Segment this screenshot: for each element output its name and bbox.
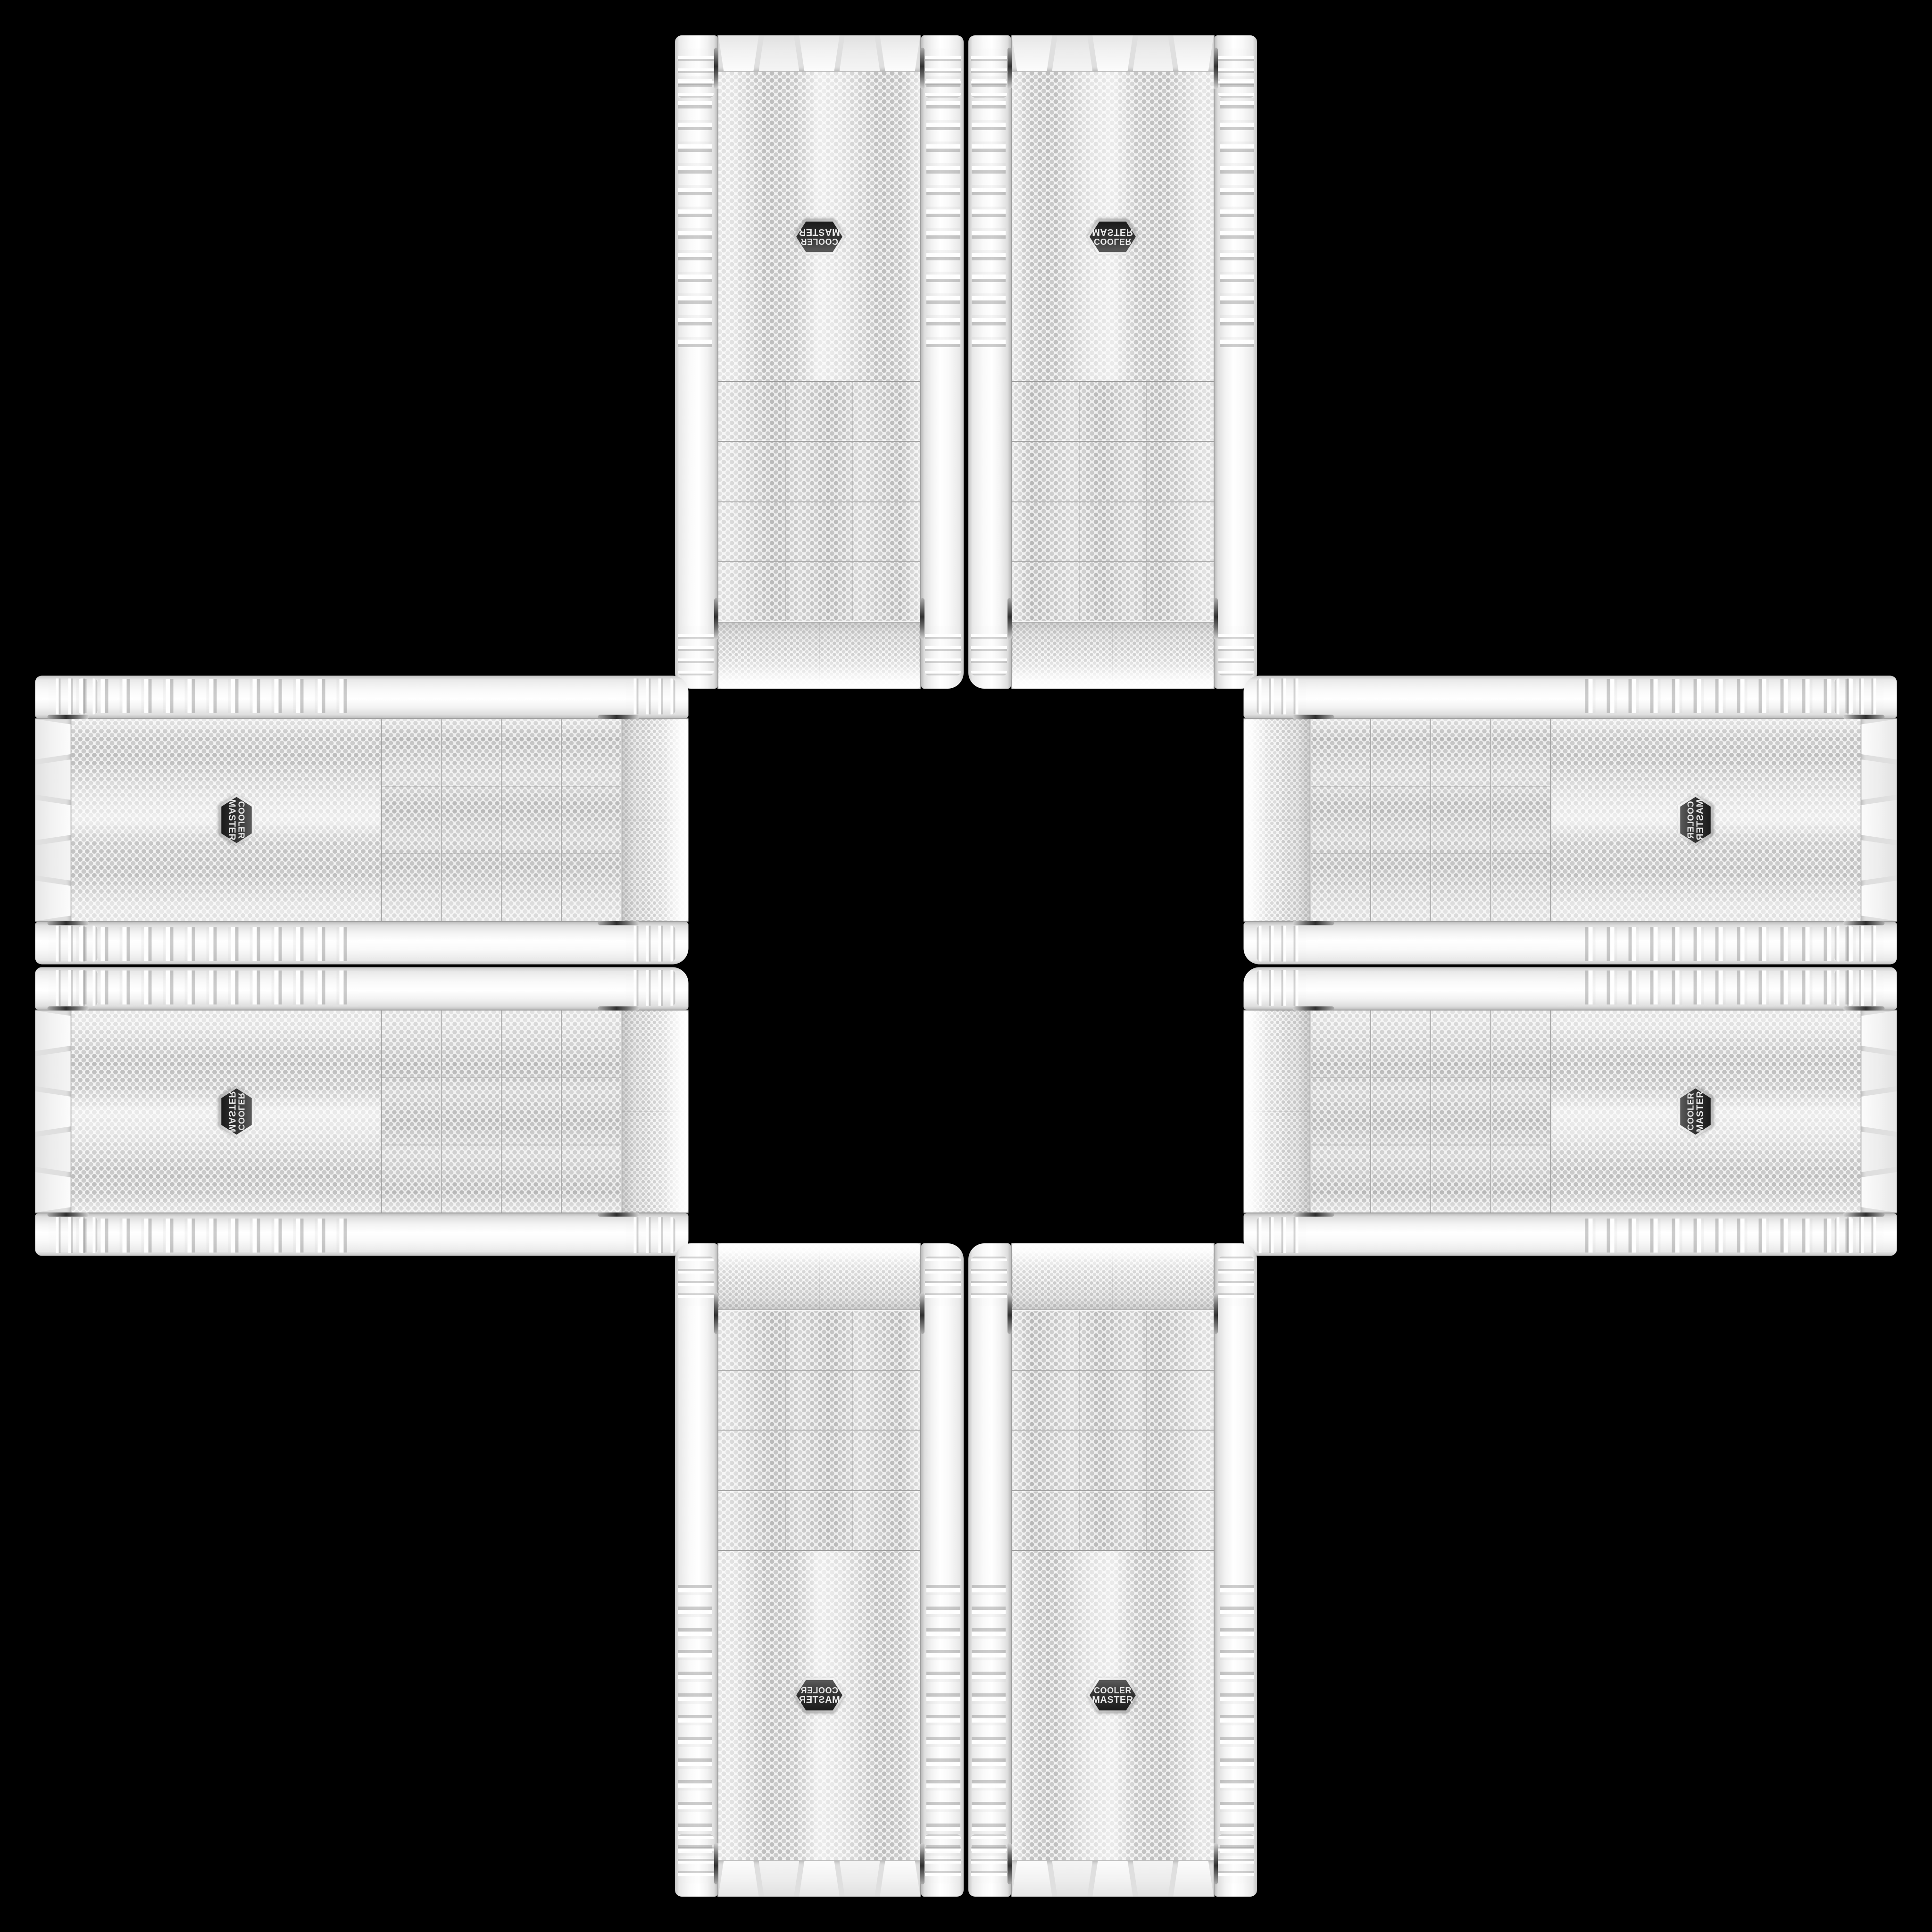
rail-end-ridges bbox=[49, 679, 98, 715]
rail-end-ridges bbox=[1257, 926, 1306, 962]
rail-end-ridges bbox=[971, 626, 1007, 675]
logo-text: COOLER MASTER bbox=[1087, 1676, 1138, 1714]
logo-text: COOLER MASTER bbox=[218, 795, 256, 846]
drive-bay-covers bbox=[1012, 381, 1214, 622]
drive-bay-covers bbox=[1012, 1310, 1214, 1551]
logo-line-2: MASTER bbox=[227, 799, 237, 841]
drive-bay-cover bbox=[1431, 719, 1491, 921]
drive-bay-cover bbox=[1371, 719, 1431, 921]
cooler-master-logo: COOLER MASTER bbox=[794, 218, 845, 256]
drive-bay-covers bbox=[718, 1310, 920, 1551]
chrome-accent bbox=[48, 921, 89, 925]
cap-segment bbox=[1862, 1011, 1897, 1051]
chrome-accent bbox=[920, 1292, 924, 1334]
logo-line-2: MASTER bbox=[1695, 1091, 1705, 1132]
drive-bay-covers bbox=[718, 381, 920, 622]
cap-segment bbox=[1862, 1132, 1897, 1172]
rail-grip-ribs bbox=[1574, 679, 1866, 713]
cap-segment bbox=[1862, 881, 1897, 921]
rail-end-ridges bbox=[971, 49, 1007, 98]
logo-line-2: MASTER bbox=[1092, 227, 1133, 237]
rail-end-ridges bbox=[678, 1257, 714, 1306]
rail-end-ridges bbox=[925, 49, 961, 98]
cooler-master-logo: COOLER MASTER bbox=[218, 795, 256, 846]
cap-segment bbox=[35, 881, 71, 921]
segmented-cap bbox=[35, 719, 72, 921]
cap-segment bbox=[1012, 35, 1052, 71]
cap-segment bbox=[1092, 35, 1133, 71]
front-panel: COOLER MASTER bbox=[1244, 718, 1897, 922]
side-rail-left bbox=[921, 35, 964, 689]
drive-bay-cover bbox=[1012, 1431, 1214, 1491]
rail-end-ridges bbox=[1835, 1217, 1884, 1253]
rail-end-ridges bbox=[49, 1217, 98, 1253]
chrome-accent bbox=[1214, 1292, 1218, 1334]
chrome-accent bbox=[1293, 1007, 1334, 1011]
cap-segment bbox=[759, 1861, 799, 1897]
rail-end-ridges bbox=[626, 679, 675, 715]
segmented-cap bbox=[718, 35, 920, 72]
pc-case-right-top: COOLER MASTER bbox=[1244, 676, 1897, 965]
logo-line-1: COOLER bbox=[1094, 1686, 1132, 1695]
chrome-accent bbox=[1843, 1213, 1885, 1217]
segmented-cap bbox=[35, 1011, 72, 1213]
cap-segment bbox=[840, 35, 880, 71]
drive-bay-cover bbox=[1012, 501, 1214, 562]
drive-bay-cover bbox=[561, 1011, 622, 1213]
front-panel: COOLER MASTER bbox=[35, 1010, 689, 1214]
rail-grip-ribs bbox=[678, 66, 712, 358]
mesh-intake-panel: COOLER MASTER bbox=[71, 719, 381, 921]
chrome-accent bbox=[1293, 921, 1334, 925]
rail-grip-ribs bbox=[678, 1574, 712, 1866]
chrome-accent bbox=[48, 1213, 89, 1217]
drive-bay-cover bbox=[1012, 381, 1214, 441]
mesh-intake-panel: COOLER MASTER bbox=[718, 1551, 920, 1861]
drive-bay-cover bbox=[381, 719, 441, 921]
side-rail-right bbox=[675, 1243, 717, 1897]
cap-segment bbox=[35, 840, 71, 881]
curved-vent-mesh bbox=[622, 719, 689, 921]
drive-bay-cover bbox=[1431, 1011, 1491, 1213]
chrome-accent bbox=[598, 1213, 640, 1217]
rail-end-ridges bbox=[49, 970, 98, 1006]
cap-segment bbox=[1862, 1172, 1897, 1213]
logo-line-1: COOLER bbox=[1686, 1093, 1695, 1131]
front-panel: COOLER MASTER bbox=[717, 35, 921, 689]
pc-case-left-bottom: COOLER MASTER bbox=[35, 967, 689, 1256]
rail-grip-ribs bbox=[926, 1574, 960, 1866]
rail-grip-ribs bbox=[66, 971, 358, 1005]
front-panel: COOLER MASTER bbox=[1011, 35, 1215, 689]
logo-text: COOLER MASTER bbox=[794, 1676, 845, 1714]
drive-bay-covers bbox=[1311, 719, 1551, 921]
pc-case-right-bottom: COOLER MASTER bbox=[1244, 967, 1897, 1256]
pc-case-top-left: COOLER MASTER bbox=[675, 35, 964, 689]
side-rail-right bbox=[1215, 35, 1257, 689]
chrome-accent bbox=[1214, 598, 1218, 640]
rail-grip-ribs bbox=[1220, 1574, 1254, 1866]
cooler-master-logo: COOLER MASTER bbox=[1677, 795, 1715, 846]
drive-bay-cover bbox=[1491, 1011, 1551, 1213]
cap-segment bbox=[35, 1172, 71, 1213]
drive-bay-cover bbox=[561, 719, 622, 921]
chrome-accent bbox=[598, 921, 640, 925]
cap-segment bbox=[799, 1861, 840, 1897]
rail-end-ridges bbox=[678, 49, 714, 98]
cooler-master-logo: COOLER MASTER bbox=[1677, 1086, 1715, 1137]
drive-bay-cover bbox=[1012, 1491, 1214, 1551]
drive-bay-covers bbox=[381, 1011, 622, 1213]
rail-grip-ribs bbox=[972, 1574, 1006, 1866]
chrome-accent bbox=[1843, 1007, 1885, 1011]
drive-bay-cover bbox=[441, 719, 501, 921]
cap-segment bbox=[1173, 35, 1214, 71]
chrome-accent bbox=[1843, 715, 1885, 719]
chrome-accent bbox=[598, 715, 640, 719]
cap-segment bbox=[35, 800, 71, 841]
logo-line-1: COOLER bbox=[1094, 237, 1132, 247]
rail-end-ridges bbox=[1835, 679, 1884, 715]
drive-bay-cover bbox=[501, 719, 562, 921]
front-panel: COOLER MASTER bbox=[35, 718, 689, 922]
logo-line-1: COOLER bbox=[1686, 801, 1695, 839]
drive-bay-cover bbox=[1311, 1011, 1371, 1213]
chrome-accent bbox=[1008, 598, 1012, 640]
cap-segment bbox=[35, 1132, 71, 1172]
chrome-accent bbox=[1214, 48, 1218, 89]
logo-line-1: COOLER bbox=[237, 801, 246, 839]
side-rail-left bbox=[921, 1243, 964, 1897]
front-panel: COOLER MASTER bbox=[717, 1243, 921, 1897]
drive-bay-cover bbox=[1012, 441, 1214, 502]
drive-bay-cover bbox=[1311, 719, 1371, 921]
cap-segment bbox=[1862, 840, 1897, 881]
side-rail-left bbox=[968, 35, 1011, 689]
logo-text: COOLER MASTER bbox=[1087, 218, 1138, 256]
chrome-accent bbox=[1293, 1213, 1334, 1217]
chrome-accent bbox=[714, 1292, 718, 1334]
chrome-accent bbox=[714, 598, 718, 640]
side-rail-right bbox=[35, 922, 689, 965]
drive-bay-cover bbox=[1012, 562, 1214, 622]
cooler-master-logo: COOLER MASTER bbox=[218, 1086, 256, 1137]
chrome-accent bbox=[1843, 921, 1885, 925]
cap-segment bbox=[840, 1861, 880, 1897]
logo-line-2: MASTER bbox=[799, 1695, 840, 1705]
logo-line-1: COOLER bbox=[800, 237, 838, 247]
rail-end-ridges bbox=[678, 1834, 714, 1883]
mesh-intake-panel: COOLER MASTER bbox=[1012, 1551, 1214, 1861]
drive-bay-cover bbox=[381, 1011, 441, 1213]
rail-end-ridges bbox=[626, 970, 675, 1006]
side-rail-left bbox=[1244, 676, 1897, 718]
rail-end-ridges bbox=[925, 1834, 961, 1883]
curved-vent-mesh bbox=[1244, 719, 1311, 921]
cap-segment bbox=[1133, 1861, 1174, 1897]
rail-end-ridges bbox=[1257, 679, 1306, 715]
drive-bay-cover bbox=[1012, 1371, 1214, 1431]
rail-grip-ribs bbox=[926, 66, 960, 358]
cap-segment bbox=[1012, 1861, 1052, 1897]
logo-line-1: COOLER bbox=[237, 1093, 246, 1131]
cap-segment bbox=[1133, 35, 1174, 71]
curved-vent-mesh bbox=[1244, 1011, 1311, 1213]
logo-text: COOLER MASTER bbox=[218, 1086, 256, 1137]
pc-case-left-top: COOLER MASTER bbox=[35, 676, 689, 965]
mesh-intake-panel: COOLER MASTER bbox=[1551, 719, 1862, 921]
chrome-accent bbox=[920, 48, 924, 89]
mesh-intake-panel: COOLER MASTER bbox=[1012, 71, 1214, 381]
chrome-accent bbox=[1293, 715, 1334, 719]
chrome-accent bbox=[1008, 48, 1012, 89]
cap-segment bbox=[799, 35, 840, 71]
cap-segment bbox=[880, 35, 920, 71]
logo-line-2: MASTER bbox=[1092, 1695, 1133, 1705]
rail-end-ridges bbox=[1218, 1257, 1254, 1306]
cap-segment bbox=[1862, 759, 1897, 800]
curved-vent-mesh bbox=[622, 1011, 689, 1213]
cap-segment bbox=[718, 1861, 759, 1897]
chrome-accent bbox=[714, 48, 718, 89]
rail-end-ridges bbox=[626, 926, 675, 962]
rail-end-ridges bbox=[925, 626, 961, 675]
drive-bay-cover bbox=[1012, 1310, 1214, 1371]
drive-bay-covers bbox=[381, 719, 622, 921]
chrome-accent bbox=[598, 1007, 640, 1011]
curved-vent-mesh bbox=[1012, 622, 1214, 689]
rail-grip-ribs bbox=[1574, 927, 1866, 961]
chrome-accent bbox=[1008, 1292, 1012, 1334]
side-rail-right bbox=[1215, 1243, 1257, 1897]
cap-segment bbox=[1862, 1051, 1897, 1091]
drive-bay-cover bbox=[718, 1310, 920, 1371]
rail-grip-ribs bbox=[1574, 1219, 1866, 1253]
logo-line-2: MASTER bbox=[227, 1091, 237, 1132]
cap-segment bbox=[759, 35, 799, 71]
chrome-accent bbox=[920, 1843, 924, 1884]
cap-segment bbox=[35, 1051, 71, 1091]
segmented-cap bbox=[1861, 1011, 1897, 1213]
side-rail-left bbox=[968, 1243, 1011, 1897]
rail-end-ridges bbox=[1835, 970, 1884, 1006]
rail-end-ridges bbox=[1218, 49, 1254, 98]
rail-grip-ribs bbox=[1574, 971, 1866, 1005]
rail-end-ridges bbox=[49, 926, 98, 962]
chrome-accent bbox=[48, 1007, 89, 1011]
drive-bay-cover bbox=[501, 1011, 562, 1213]
drive-bay-cover bbox=[718, 1491, 920, 1551]
cooler-master-logo: COOLER MASTER bbox=[1087, 218, 1138, 256]
rail-end-ridges bbox=[925, 1257, 961, 1306]
side-rail-right bbox=[1244, 967, 1897, 1010]
side-rail-left bbox=[1244, 1214, 1897, 1256]
side-rail-left bbox=[35, 1214, 689, 1256]
rail-end-ridges bbox=[971, 1834, 1007, 1883]
rail-end-ridges bbox=[1218, 1834, 1254, 1883]
mesh-intake-panel: COOLER MASTER bbox=[718, 71, 920, 381]
curved-vent-mesh bbox=[718, 622, 920, 689]
drive-bay-covers bbox=[1311, 1011, 1551, 1213]
drive-bay-cover bbox=[718, 562, 920, 622]
rail-end-ridges bbox=[1257, 1217, 1306, 1253]
logo-text: COOLER MASTER bbox=[1677, 1086, 1715, 1137]
cap-segment bbox=[880, 1861, 920, 1897]
drive-bay-cover bbox=[718, 1371, 920, 1431]
drive-bay-cover bbox=[718, 441, 920, 502]
drive-bay-cover bbox=[1491, 719, 1551, 921]
chrome-accent bbox=[714, 1843, 718, 1884]
front-panel: COOLER MASTER bbox=[1011, 1243, 1215, 1897]
cap-segment bbox=[35, 719, 71, 760]
cap-segment bbox=[1862, 719, 1897, 760]
drive-bay-cover bbox=[718, 1431, 920, 1491]
curved-vent-mesh bbox=[718, 1243, 920, 1310]
cap-segment bbox=[1862, 800, 1897, 841]
segmented-cap bbox=[718, 1860, 920, 1897]
cooler-master-logo: COOLER MASTER bbox=[1087, 1676, 1138, 1714]
logo-line-1: COOLER bbox=[800, 1686, 838, 1695]
segmented-cap bbox=[1861, 719, 1897, 921]
rail-grip-ribs bbox=[1220, 66, 1254, 358]
drive-bay-cover bbox=[718, 501, 920, 562]
rail-end-ridges bbox=[1218, 626, 1254, 675]
pc-case-top-right: COOLER MASTER bbox=[968, 35, 1257, 689]
logo-line-2: MASTER bbox=[1695, 799, 1705, 841]
cap-segment bbox=[718, 35, 759, 71]
cap-segment bbox=[1052, 1861, 1093, 1897]
side-rail-right bbox=[675, 35, 717, 689]
rail-grip-ribs bbox=[66, 679, 358, 713]
pc-case-bottom-left: COOLER MASTER bbox=[675, 1243, 964, 1897]
cap-segment bbox=[35, 759, 71, 800]
pc-case-bottom-right: COOLER MASTER bbox=[968, 1243, 1257, 1897]
cap-segment bbox=[35, 1011, 71, 1051]
drive-bay-cover bbox=[718, 381, 920, 441]
drive-bay-cover bbox=[441, 1011, 501, 1213]
chrome-accent bbox=[920, 598, 924, 640]
mesh-intake-panel: COOLER MASTER bbox=[71, 1011, 381, 1213]
cap-segment bbox=[1092, 1861, 1133, 1897]
cap-segment bbox=[1862, 1091, 1897, 1132]
segmented-cap bbox=[1012, 1860, 1214, 1897]
rail-end-ridges bbox=[971, 1257, 1007, 1306]
cap-segment bbox=[1052, 35, 1093, 71]
rail-end-ridges bbox=[1835, 926, 1884, 962]
logo-text: COOLER MASTER bbox=[1677, 795, 1715, 846]
rail-end-ridges bbox=[1257, 970, 1306, 1006]
segmented-cap bbox=[1012, 35, 1214, 72]
chrome-accent bbox=[48, 715, 89, 719]
side-rail-left bbox=[35, 676, 689, 718]
collage-canvas: COOLER MASTER bbox=[0, 0, 1932, 1932]
rail-grip-ribs bbox=[972, 66, 1006, 358]
logo-line-2: MASTER bbox=[799, 227, 840, 237]
chrome-accent bbox=[1008, 1843, 1012, 1884]
drive-bay-cover bbox=[1371, 1011, 1431, 1213]
curved-vent-mesh bbox=[1012, 1243, 1214, 1310]
cap-segment bbox=[35, 1091, 71, 1132]
rail-grip-ribs bbox=[66, 927, 358, 961]
chrome-accent bbox=[1214, 1843, 1218, 1884]
rail-end-ridges bbox=[626, 1217, 675, 1253]
front-panel: COOLER MASTER bbox=[1244, 1010, 1897, 1214]
side-rail-right bbox=[35, 967, 689, 1010]
rail-end-ridges bbox=[678, 626, 714, 675]
cooler-master-logo: COOLER MASTER bbox=[794, 1676, 845, 1714]
rail-grip-ribs bbox=[66, 1219, 358, 1253]
logo-text: COOLER MASTER bbox=[794, 218, 845, 256]
side-rail-right bbox=[1244, 922, 1897, 965]
cap-segment bbox=[1173, 1861, 1214, 1897]
mesh-intake-panel: COOLER MASTER bbox=[1551, 1011, 1862, 1213]
